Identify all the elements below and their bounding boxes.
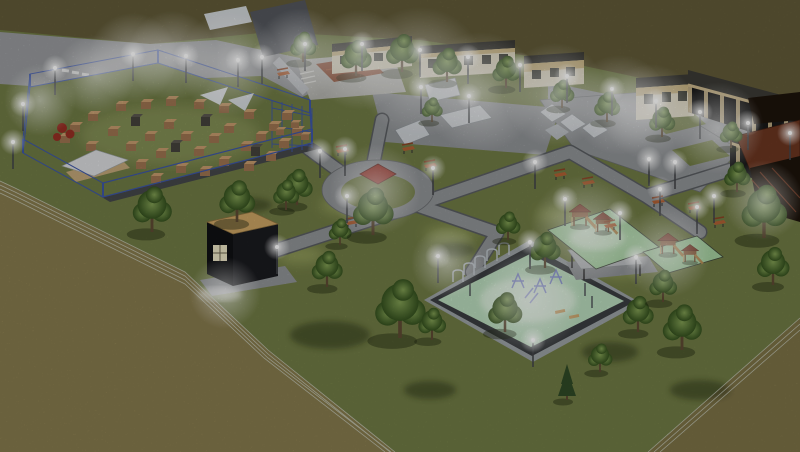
- park-night-render: [0, 0, 800, 452]
- film-grain-overlay: [0, 0, 800, 452]
- render-canvas: [0, 0, 800, 452]
